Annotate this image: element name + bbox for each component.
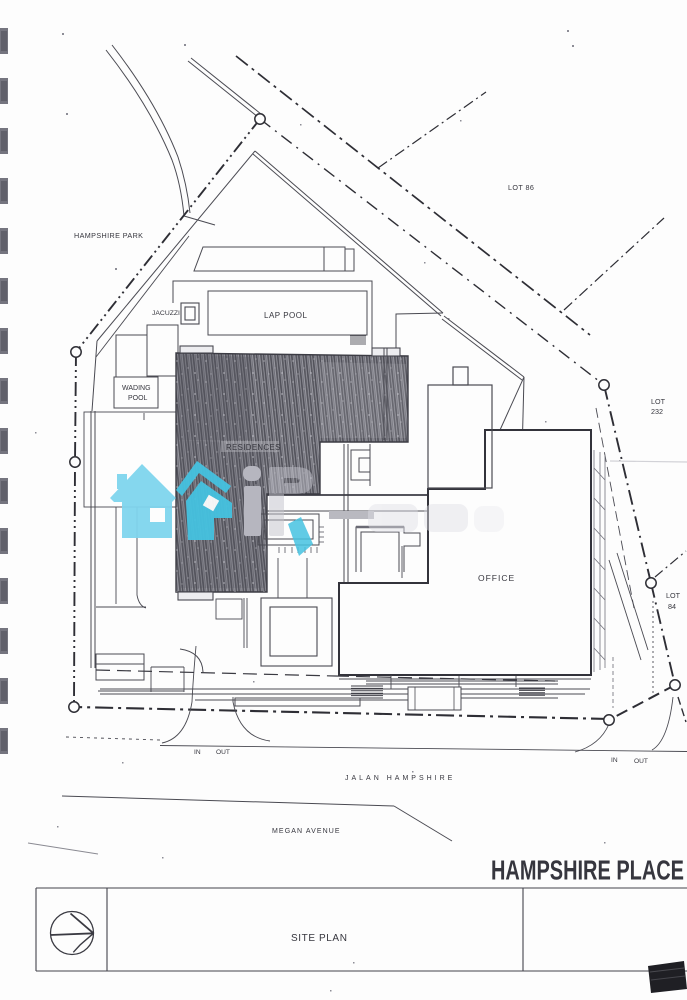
svg-text:MEGAN AVENUE: MEGAN AVENUE xyxy=(272,828,341,835)
svg-text:HAMPSHIRE PLACE: HAMPSHIRE PLACE xyxy=(491,855,684,886)
svg-text:OUT: OUT xyxy=(634,758,648,765)
svg-text:HAMPSHIRE PARK: HAMPSHIRE PARK xyxy=(74,231,143,240)
svg-text:LOT: LOT xyxy=(666,591,681,600)
svg-text:OUT: OUT xyxy=(216,749,230,756)
svg-text:OFFICE: OFFICE xyxy=(478,573,515,583)
svg-text:IN: IN xyxy=(611,757,618,764)
svg-text:IN: IN xyxy=(194,749,201,756)
svg-text:232: 232 xyxy=(651,407,663,416)
svg-text:LAP POOL: LAP POOL xyxy=(264,311,307,320)
svg-text:JACUZZI: JACUZZI xyxy=(152,310,180,317)
svg-text:SITE PLAN: SITE PLAN xyxy=(291,933,348,944)
svg-text:84: 84 xyxy=(668,602,676,611)
svg-text:JALAN HAMPSHIRE: JALAN HAMPSHIRE xyxy=(345,775,455,782)
svg-text:LOT: LOT xyxy=(651,397,666,406)
svg-text:LOT 86: LOT 86 xyxy=(508,183,534,192)
svg-text:POOL: POOL xyxy=(128,395,148,402)
svg-text:WADING: WADING xyxy=(122,385,151,392)
svg-text:RESIDENCES: RESIDENCES xyxy=(226,443,281,452)
